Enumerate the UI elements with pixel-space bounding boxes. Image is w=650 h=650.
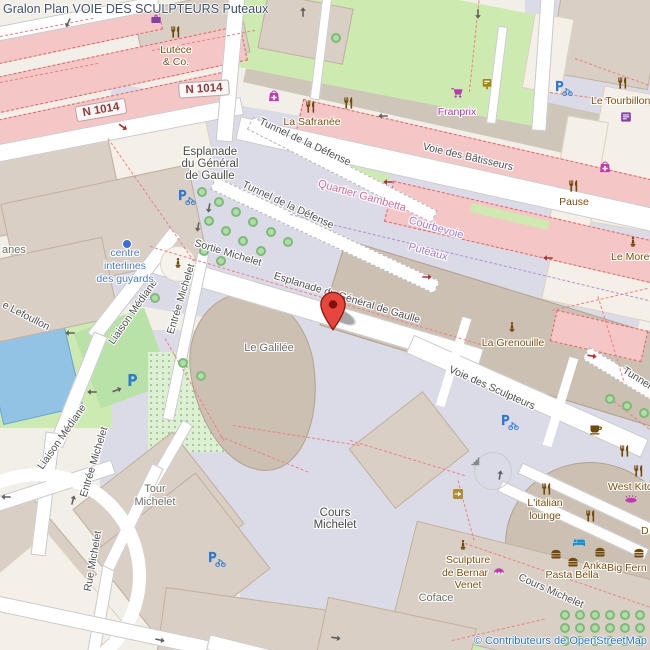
oneway-arrow-red-icon bbox=[383, 177, 394, 188]
oneway-arrow-icon bbox=[298, 7, 309, 18]
fast-food-icon bbox=[633, 547, 646, 560]
ticket-machine-icon bbox=[481, 78, 494, 91]
poi-label-safranee: La Safranée bbox=[283, 116, 340, 128]
beauty-shop-icon bbox=[624, 492, 638, 506]
entrance-door-icon bbox=[452, 488, 464, 500]
poi-label-franprix: Franprix bbox=[438, 106, 477, 118]
area-label-esplanade: de Gaulle bbox=[185, 170, 234, 182]
bicycle-parking-icon bbox=[206, 551, 228, 569]
restaurant-icon bbox=[540, 483, 553, 496]
tree-icon bbox=[221, 226, 231, 236]
poi-label-tourbillon: Le Tourbillon bbox=[591, 95, 650, 107]
area-label-esplanade: Esplanade bbox=[183, 146, 237, 158]
oneway-arrow-icon bbox=[87, 387, 98, 398]
area-label-cours-michelet: Cours bbox=[320, 507, 351, 519]
tree-icon bbox=[605, 623, 615, 633]
statue-memorial-icon bbox=[457, 539, 469, 551]
poi-label-lutece: Lutèce bbox=[160, 44, 192, 56]
building-label-tour-michelet: Tour bbox=[144, 483, 165, 495]
poi-label-pause: Pause bbox=[559, 196, 589, 208]
parking-icon bbox=[125, 373, 139, 387]
oneway-arrow-icon bbox=[378, 111, 389, 122]
oneway-arrow-icon bbox=[203, 202, 216, 215]
oneway-arrow-red-icon bbox=[422, 272, 433, 283]
tree-icon bbox=[605, 394, 615, 404]
tree-icon bbox=[560, 623, 570, 633]
tree-icon bbox=[283, 237, 293, 247]
poi-label-partial-d: D bbox=[641, 525, 649, 537]
restaurant-icon bbox=[304, 101, 317, 114]
statue-memorial-icon bbox=[506, 321, 518, 333]
tree-icon bbox=[635, 623, 645, 633]
poi-label-italian-lounge: L'italian bbox=[527, 497, 562, 509]
building-label-coface: Coface bbox=[419, 592, 454, 604]
bicycle-parking-icon bbox=[176, 189, 198, 207]
tree-icon bbox=[590, 610, 600, 620]
tree-icon bbox=[197, 187, 207, 197]
tree-icon bbox=[238, 236, 248, 246]
tree-icon bbox=[590, 623, 600, 633]
poi-label-sculpture-venet: de Bernar bbox=[442, 567, 488, 579]
building-label-le-galilee: Le Galilée bbox=[244, 342, 294, 354]
poi-label-moret: Le Moret bbox=[611, 251, 650, 263]
oneway-arrow-icon bbox=[192, 221, 205, 234]
poi-label-sculpture-venet: Sculpture bbox=[446, 554, 490, 566]
tree-icon bbox=[214, 197, 224, 207]
statue-memorial-icon bbox=[627, 236, 639, 248]
tree-icon bbox=[231, 207, 241, 217]
tree-icon bbox=[575, 610, 585, 620]
area-label-esplanade: du Général bbox=[182, 158, 239, 170]
poi-label-italian-lounge: lounge bbox=[529, 510, 561, 522]
tree-icon bbox=[204, 216, 214, 226]
building-label-tour-michelet: Michelet bbox=[135, 496, 176, 508]
tree-icon bbox=[178, 358, 188, 368]
tree-icon bbox=[620, 623, 630, 633]
oneway-arrow-icon bbox=[494, 469, 507, 482]
poi-label-west-kitchen: West Kitc bbox=[608, 481, 650, 493]
tree-icon bbox=[635, 610, 645, 620]
restaurant-icon bbox=[169, 26, 182, 39]
bicycle-parking-icon bbox=[553, 80, 575, 98]
fast-food-icon bbox=[567, 556, 580, 569]
marketplace-awning-icon bbox=[493, 566, 506, 579]
area-label-cours-michelet: Michelet bbox=[314, 519, 357, 531]
poi-label-lutece: & Co. bbox=[163, 56, 189, 68]
cafe-icon bbox=[589, 422, 603, 436]
map-marker-pin[interactable] bbox=[319, 291, 347, 331]
restaurant-icon bbox=[567, 180, 580, 193]
newsagent-icon bbox=[620, 111, 633, 124]
restaurant-icon bbox=[632, 465, 645, 478]
poi-label-big-fern: Big Fern bbox=[607, 562, 647, 574]
tree-icon bbox=[331, 33, 341, 43]
restaurant-icon bbox=[618, 445, 631, 458]
osm-attribution-link[interactable]: © Contributeurs de OpenStreetMap bbox=[474, 635, 647, 647]
fast-food-icon bbox=[550, 548, 563, 561]
map-canvas[interactable]: N 1014 N 1014 Voie des Bâtisseurs Tunnel… bbox=[0, 0, 650, 650]
oneway-arrow-red-icon bbox=[543, 253, 554, 264]
poi-label-centre: centre bbox=[110, 247, 139, 259]
bicycle-parking-icon bbox=[499, 414, 521, 432]
poi-label-sculpture-venet: Venet bbox=[455, 579, 482, 591]
tree-icon bbox=[605, 610, 615, 620]
supermarket-cart-icon bbox=[451, 87, 464, 100]
poi-label-centre: des guyards bbox=[96, 273, 153, 285]
tree-icon bbox=[560, 610, 570, 620]
oneway-arrow-icon bbox=[330, 632, 343, 645]
oneway-arrow-icon bbox=[65, 328, 76, 339]
fast-food-icon bbox=[594, 546, 607, 559]
restaurant-icon bbox=[584, 510, 597, 523]
poi-label-grenouille: La Grenouille bbox=[482, 337, 544, 349]
pharmacy-icon bbox=[268, 90, 281, 103]
tree-icon bbox=[622, 401, 632, 411]
oneway-arrow-icon bbox=[1, 492, 12, 503]
pharmacy-icon bbox=[599, 161, 612, 174]
tree-icon bbox=[256, 246, 266, 256]
tree-icon bbox=[248, 217, 258, 227]
tree-icon bbox=[575, 623, 585, 633]
hotel-bed-icon bbox=[572, 535, 586, 549]
poi-label-centre: interlines bbox=[104, 260, 146, 272]
page-title: Gralon Plan VOIE DES SCULPTEURS Puteaux bbox=[3, 2, 268, 16]
oneway-arrow-icon bbox=[153, 633, 166, 646]
tree-icon bbox=[266, 227, 276, 237]
poi-label-anka: Anka bbox=[583, 560, 607, 572]
oneway-arrow-red-icon bbox=[586, 350, 599, 363]
steps-icon bbox=[470, 456, 480, 466]
statue-memorial-icon bbox=[172, 257, 184, 269]
building-label-partial: anes bbox=[2, 244, 26, 256]
tree-icon bbox=[196, 371, 206, 381]
restaurant-icon bbox=[616, 77, 629, 90]
tree-icon bbox=[620, 610, 630, 620]
restaurant-icon bbox=[342, 97, 355, 110]
oneway-arrow-icon bbox=[473, 9, 484, 20]
tree-icon bbox=[639, 408, 649, 418]
